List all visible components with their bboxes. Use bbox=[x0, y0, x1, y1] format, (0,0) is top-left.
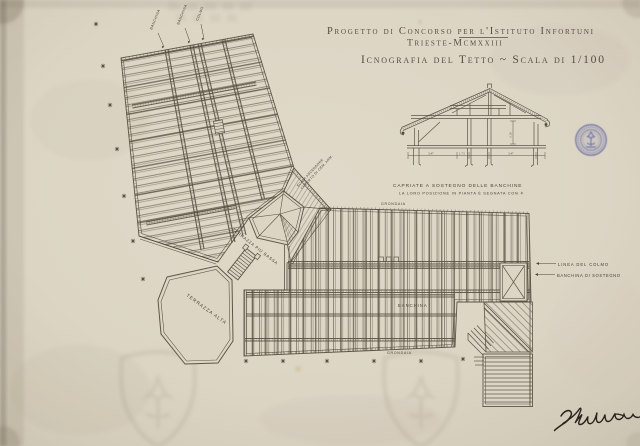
svg-text:GRONDAIA: GRONDAIA bbox=[387, 351, 412, 355]
svg-text:LINEA DEL COLMO: LINEA DEL COLMO bbox=[558, 262, 609, 267]
svg-text:LA LORO POSIZIONE IN PIANTA È: LA LORO POSIZIONE IN PIANTA È SEGNATA CO… bbox=[399, 191, 524, 196]
svg-text:1.73: 1.73 bbox=[459, 152, 465, 156]
svg-text:3.10: 3.10 bbox=[509, 132, 513, 138]
svg-text:Progetto di Concorso per l'Ist: Progetto di Concorso per l'Istituto Info… bbox=[327, 26, 595, 37]
svg-text:3.47: 3.47 bbox=[428, 152, 434, 156]
svg-text:BANCHINA DI SOSTEGNO: BANCHINA DI SOSTEGNO bbox=[557, 273, 621, 278]
svg-text:BANCHINA: BANCHINA bbox=[398, 303, 428, 308]
svg-text:Icnografia del Tetto ~ Scala d: Icnografia del Tetto ~ Scala di 1/100 bbox=[361, 53, 606, 66]
svg-text:3.47: 3.47 bbox=[508, 152, 514, 156]
svg-text:CAPRIATE A SOSTEGNO DELLE BANC: CAPRIATE A SOSTEGNO DELLE BANCHINE bbox=[393, 183, 522, 189]
svg-text:Trieste-Mcmxxiii: Trieste-Mcmxxiii bbox=[407, 38, 504, 49]
svg-text:GRONDAIA: GRONDAIA bbox=[381, 202, 406, 206]
